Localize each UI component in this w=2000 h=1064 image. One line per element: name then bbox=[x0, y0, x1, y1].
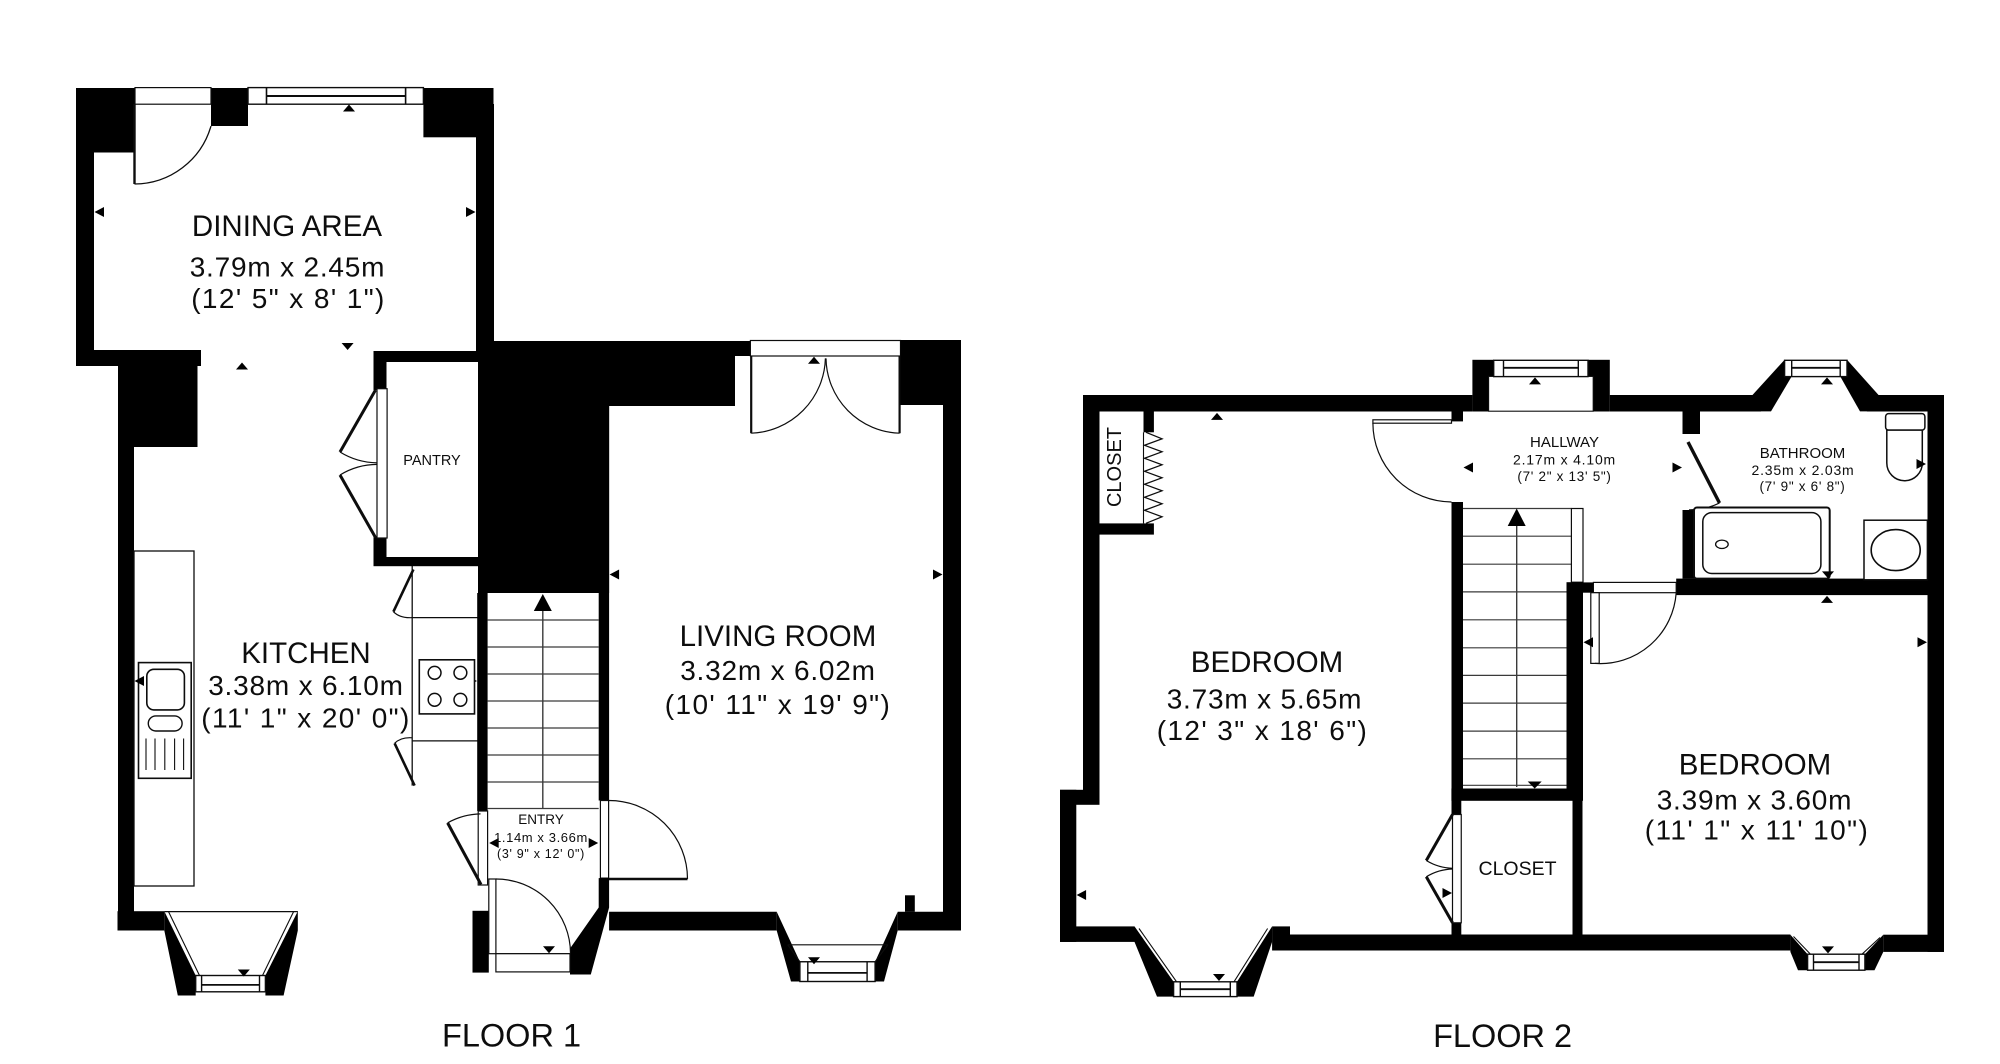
svg-text:ENTRY: ENTRY bbox=[518, 812, 564, 827]
svg-text:HALLWAY: HALLWAY bbox=[1530, 434, 1599, 451]
svg-text:3.38m x 6.10m: 3.38m x 6.10m bbox=[208, 670, 404, 701]
svg-text:(12' 5" x 8' 1"): (12' 5" x 8' 1") bbox=[191, 283, 386, 314]
svg-text:2.17m x 4.10m: 2.17m x 4.10m bbox=[1513, 452, 1616, 468]
svg-text:3.32m x 6.02m: 3.32m x 6.02m bbox=[680, 655, 876, 686]
svg-text:PANTRY: PANTRY bbox=[403, 453, 461, 469]
svg-text:DINING AREA: DINING AREA bbox=[192, 210, 382, 243]
svg-text:FLOOR 1: FLOOR 1 bbox=[442, 1018, 581, 1054]
svg-text:(11' 1" x 11' 10"): (11' 1" x 11' 10") bbox=[1645, 815, 1869, 846]
svg-text:(10' 11" x 19' 9"): (10' 11" x 19' 9") bbox=[665, 689, 891, 720]
svg-text:BEDROOM: BEDROOM bbox=[1191, 646, 1343, 679]
svg-text:LIVING ROOM: LIVING ROOM bbox=[680, 620, 877, 653]
svg-text:1.14m x 3.66m: 1.14m x 3.66m bbox=[494, 830, 588, 845]
svg-text:(11' 1" x 20' 0"): (11' 1" x 20' 0") bbox=[201, 703, 411, 734]
svg-text:(3' 9" x 12' 0"): (3' 9" x 12' 0") bbox=[497, 847, 585, 861]
svg-text:(7' 9" x 6' 8"): (7' 9" x 6' 8") bbox=[1759, 479, 1845, 494]
svg-text:3.39m x 3.60m: 3.39m x 3.60m bbox=[1657, 785, 1853, 816]
svg-text:(12' 3" x 18' 6"): (12' 3" x 18' 6") bbox=[1157, 715, 1369, 746]
svg-text:2.35m x 2.03m: 2.35m x 2.03m bbox=[1752, 462, 1855, 478]
svg-text:KITCHEN: KITCHEN bbox=[241, 637, 370, 670]
svg-text:3.79m x 2.45m: 3.79m x 2.45m bbox=[190, 252, 386, 283]
svg-text:CLOSET: CLOSET bbox=[1104, 427, 1126, 507]
svg-text:BATHROOM: BATHROOM bbox=[1760, 445, 1846, 462]
svg-text:(7' 2" x 13' 5"): (7' 2" x 13' 5") bbox=[1517, 469, 1611, 484]
svg-text:CLOSET: CLOSET bbox=[1478, 858, 1556, 880]
svg-text:BEDROOM: BEDROOM bbox=[1679, 749, 1831, 782]
svg-text:3.73m x 5.65m: 3.73m x 5.65m bbox=[1167, 684, 1363, 715]
svg-text:FLOOR 2: FLOOR 2 bbox=[1433, 1018, 1572, 1054]
